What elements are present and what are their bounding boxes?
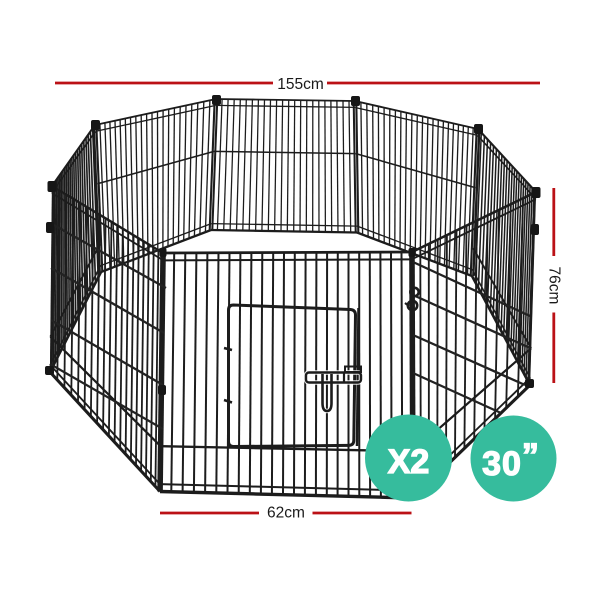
svg-text:X2: X2	[388, 443, 430, 481]
svg-text:155cm: 155cm	[277, 76, 324, 93]
svg-text:62cm: 62cm	[267, 505, 305, 522]
svg-text:76cm: 76cm	[545, 267, 562, 305]
